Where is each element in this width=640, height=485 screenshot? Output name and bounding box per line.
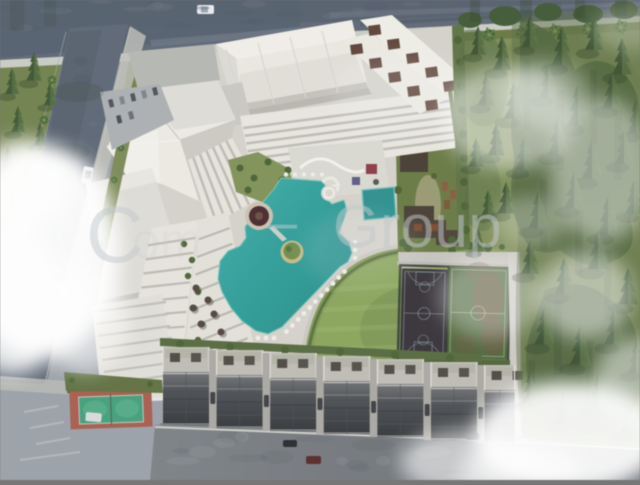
svg-text:–: – <box>266 190 298 253</box>
svg-text:om: om <box>132 213 201 269</box>
svg-text:Group: Group <box>333 193 502 260</box>
